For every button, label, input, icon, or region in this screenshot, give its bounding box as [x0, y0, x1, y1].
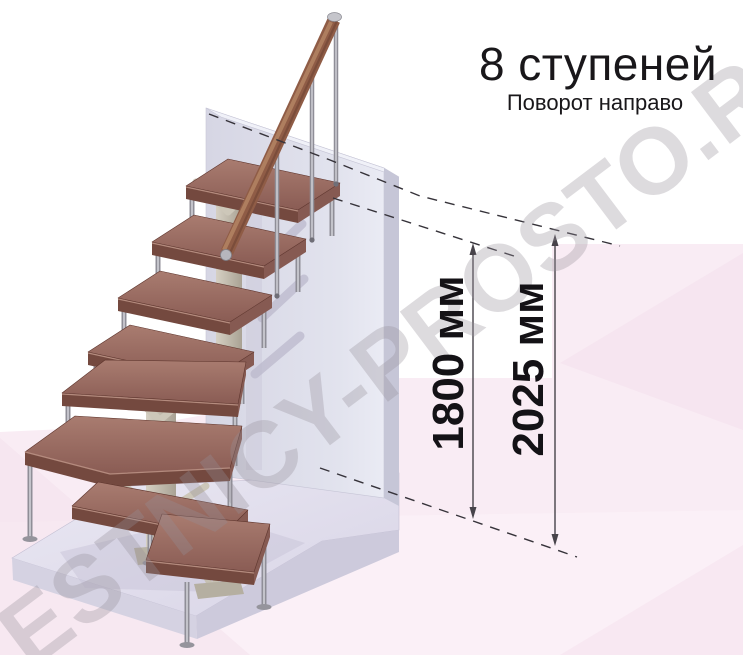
dimension-label-flight-height: 1800 мм	[424, 275, 474, 450]
handrail-end-cap	[221, 250, 232, 261]
staircase-diagram: LESTNICY-PROSTO.RU 8 ступеней Поворот на…	[0, 0, 743, 655]
page-title: 8 ступеней	[479, 37, 717, 91]
page-subtitle: Поворот направо	[507, 90, 683, 116]
dimension-label-total-height: 2025 мм	[504, 281, 554, 456]
handrail-top-cap	[328, 13, 342, 22]
tread-4	[62, 360, 246, 417]
